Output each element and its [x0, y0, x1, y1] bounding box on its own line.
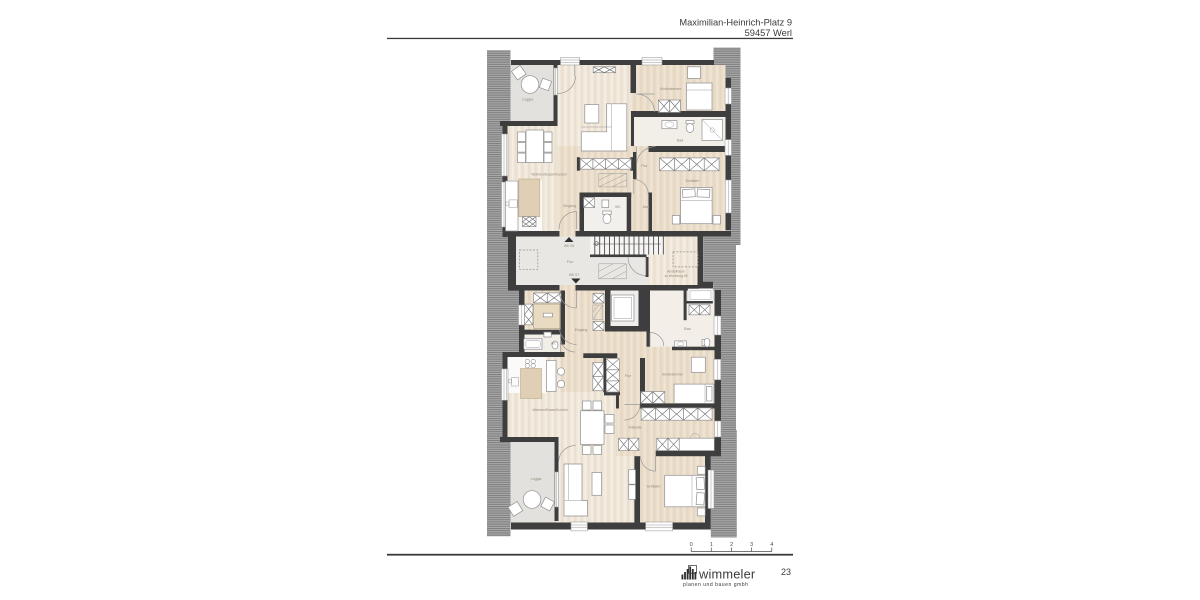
svg-text:Bad: Bad: [677, 139, 683, 143]
svg-text:Flur: Flur: [641, 164, 648, 168]
svg-text:Wohnen/Essen/Kochen: Wohnen/Essen/Kochen: [531, 173, 566, 177]
svg-text:Eingang: Eingang: [575, 328, 588, 332]
svg-text:Bad: Bad: [684, 327, 690, 331]
svg-text:Abstellraum: Abstellraum: [667, 270, 685, 274]
svg-text:Eingang: Eingang: [563, 204, 576, 208]
svg-text:59457 Werl: 59457 Werl: [745, 28, 792, 38]
svg-text:WE 07: WE 07: [569, 273, 579, 277]
svg-text:wimmeler: wimmeler: [698, 567, 756, 582]
svg-text:1: 1: [710, 542, 713, 548]
svg-text:WC: WC: [615, 205, 621, 209]
svg-text:Maximilian-Heinrich-Platz 9: Maximilian-Heinrich-Platz 9: [679, 18, 792, 28]
svg-text:WE 06: WE 06: [564, 244, 574, 248]
svg-text:WC: WC: [551, 342, 557, 346]
svg-text:23: 23: [781, 567, 791, 577]
svg-text:zu Wohnung 06: zu Wohnung 06: [664, 274, 687, 278]
svg-text:Flur: Flur: [567, 260, 574, 264]
svg-text:Kinderzimmer: Kinderzimmer: [662, 372, 684, 376]
svg-text:0: 0: [690, 542, 693, 548]
svg-text:Kinderzimmer: Kinderzimmer: [660, 87, 682, 91]
svg-text:3: 3: [750, 542, 753, 548]
svg-text:Wohnen/Essen/Kochen: Wohnen/Essen/Kochen: [532, 408, 567, 412]
svg-text:Abst: Abst: [643, 205, 650, 209]
svg-text:Loggia: Loggia: [531, 477, 542, 481]
svg-text:Loggia: Loggia: [522, 98, 533, 102]
svg-text:planen und bauen gmbh: planen und bauen gmbh: [683, 582, 748, 588]
svg-text:4: 4: [770, 542, 773, 548]
svg-text:Schlafen: Schlafen: [686, 179, 700, 183]
svg-text:Ankleide: Ankleide: [628, 425, 641, 429]
svg-text:2: 2: [730, 542, 733, 548]
svg-text:Flur: Flur: [625, 374, 632, 378]
svg-text:Schlafen: Schlafen: [647, 485, 661, 489]
